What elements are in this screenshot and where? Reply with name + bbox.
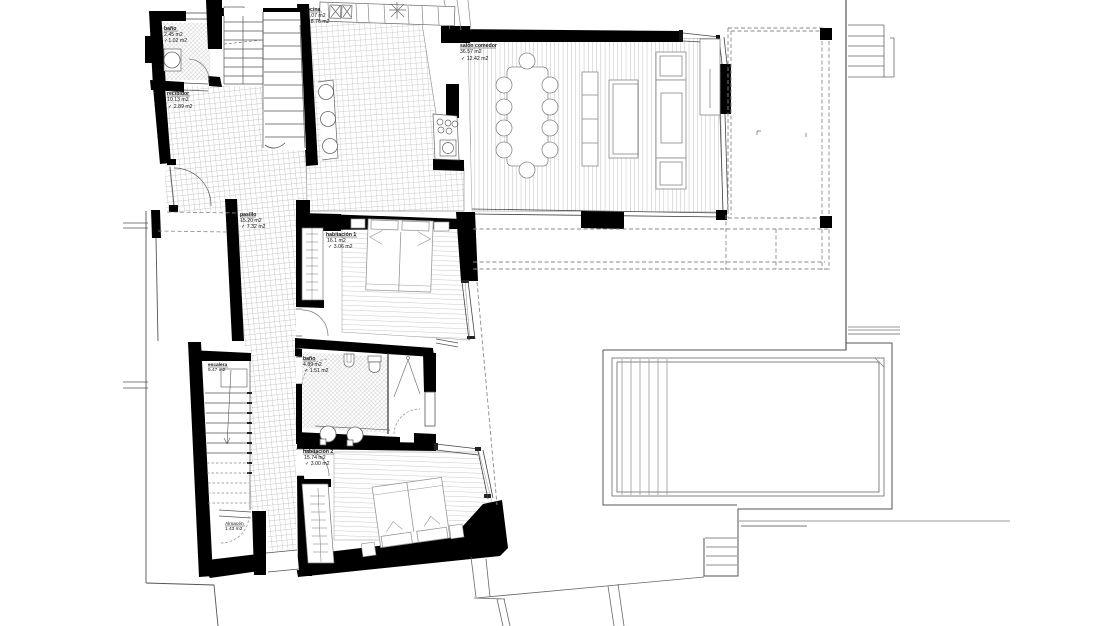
svg-text:5.47 m2: 5.47 m2 [208, 367, 226, 373]
svg-text:10.13 m2: 10.13 m2 [167, 97, 189, 103]
svg-text:✓ 1.51 m2: ✓ 1.51 m2 [304, 368, 329, 374]
svg-text:✓ 12.42 m2: ✓ 12.42 m2 [461, 56, 489, 62]
svg-text:✓1.02 m2: ✓1.02 m2 [164, 38, 187, 44]
svg-text:✓ 7.32 m2: ✓ 7.32 m2 [241, 224, 266, 230]
svg-text:✓ 3.00 m2: ✓ 3.00 m2 [305, 461, 330, 467]
svg-text:✓ 8.76 m2: ✓ 8.76 m2 [305, 19, 330, 25]
svg-text:36.57 m2: 36.57 m2 [460, 49, 482, 55]
svg-text:1.43 m2: 1.43 m2 [225, 526, 243, 532]
svg-text:✓ 3.06 m2: ✓ 3.06 m2 [328, 244, 353, 250]
svg-text:✓ 2.89 m2: ✓ 2.89 m2 [168, 104, 193, 110]
